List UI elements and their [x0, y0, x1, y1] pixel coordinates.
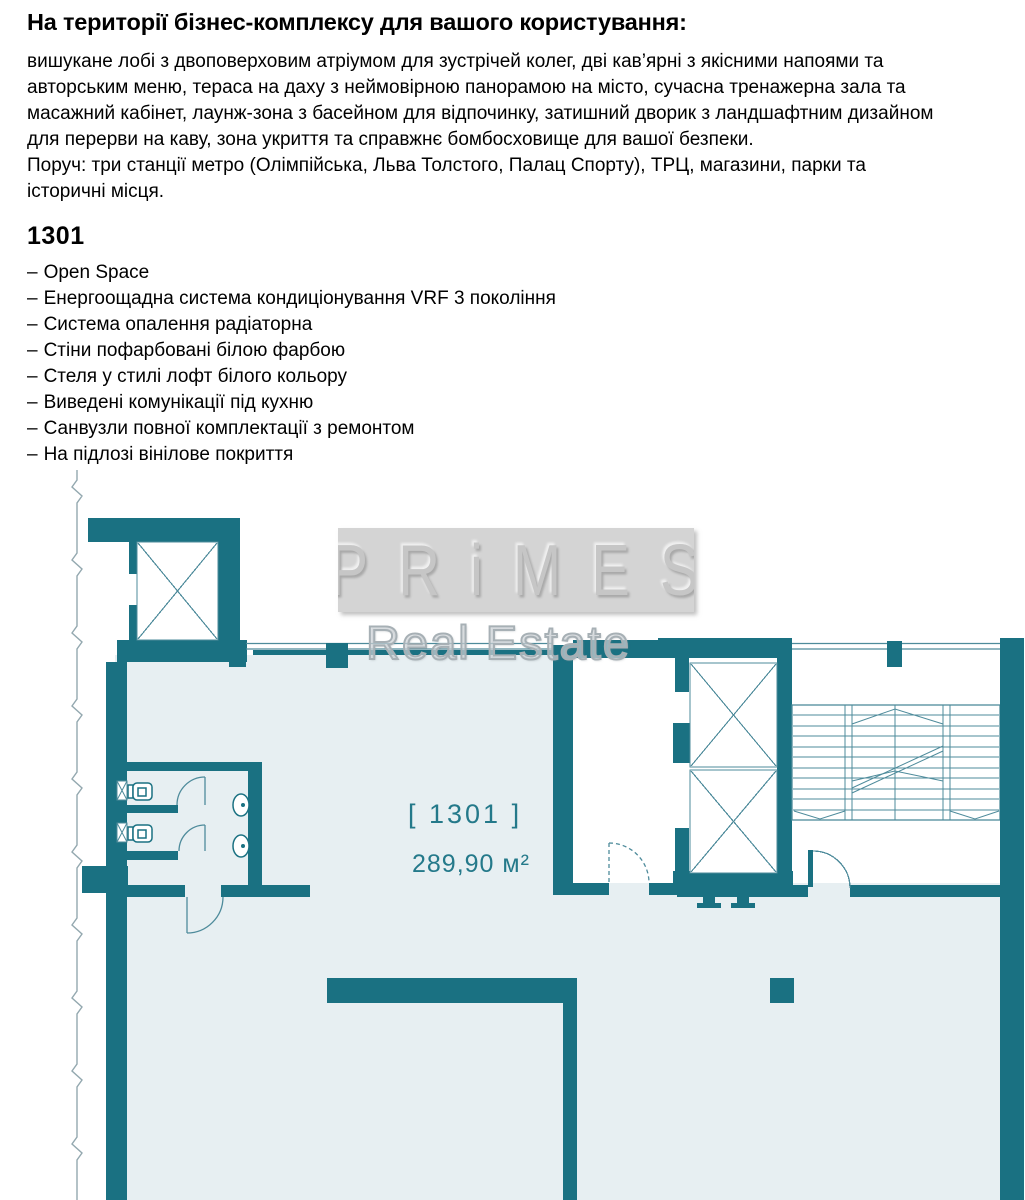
page-title: На території бізнес-комплексу для вашого…: [27, 9, 1025, 36]
description-line: вишукане лобі з двоповерховим атріумом д…: [27, 49, 1025, 75]
floor-plan: PRiMES Real Estate [ 1301 ] 289,90 м²: [0, 455, 1025, 1200]
description-line: історичні місця.: [27, 179, 1025, 205]
feature-item: –Виведені комунікації під кухню: [27, 390, 1025, 416]
dashed-door-icon: [609, 843, 649, 883]
feature-item: –Санвузли повної комплектації з ремонтом: [27, 416, 1025, 442]
feature-item: –Стеля у стилі лофт білого кольору: [27, 364, 1025, 390]
staircase: [792, 705, 1000, 820]
bullet-dash: –: [27, 418, 38, 439]
bullet-dash: –: [27, 288, 38, 309]
watermark-subtitle: Real Estate: [366, 615, 696, 670]
description: вишукане лобі з двоповерховим атріумом д…: [27, 49, 1025, 205]
feature-text: Санвузли повної комплектації з ремонтом: [44, 418, 415, 439]
unit-area-label: 289,90 м²: [412, 850, 530, 879]
right-wall: [1000, 638, 1024, 1200]
page: { "page": { "heading": "На території біз…: [0, 0, 1025, 1200]
bullet-dash: –: [27, 262, 38, 283]
watermark-brand-text: PRiMES: [338, 528, 694, 612]
feature-text: Open Space: [44, 262, 150, 283]
description-line: масажний кабінет, лаунж-зона з басейном …: [27, 101, 1025, 127]
bullet-dash: –: [27, 340, 38, 361]
elevator-block: [658, 638, 793, 908]
bullet-dash: –: [27, 314, 38, 335]
toilet-icon: [128, 825, 152, 842]
toilet-icon: [128, 783, 152, 800]
description-line: для перерви на каву, зона укриття та спр…: [27, 127, 1025, 153]
feature-item: –Енергоощадна система кондиціонування VR…: [27, 286, 1025, 312]
feature-list: –Open Space–Енергоощадна система кондиці…: [27, 260, 1025, 468]
entrance-corridor: [553, 640, 677, 895]
feature-text: Виведені комунікації під кухню: [44, 392, 314, 413]
feature-text: Стіни пофарбовані білою фарбою: [44, 340, 346, 361]
bullet-dash: –: [27, 392, 38, 413]
feature-text: Система опалення радіаторна: [44, 314, 313, 335]
feature-item: –Система опалення радіаторна: [27, 312, 1025, 338]
listing-text-block: На території бізнес-комплексу для вашого…: [27, 9, 1025, 468]
watermark-logo: PRiMES: [338, 528, 694, 612]
unit-number-label: [ 1301 ]: [408, 799, 522, 830]
elevator-top-left: [88, 518, 247, 662]
bullet-dash: –: [27, 366, 38, 387]
feature-text: Енергоощадна система кондиціонування VRF…: [44, 288, 556, 309]
left-wall: [82, 662, 128, 1200]
description-line: Поруч: три станції метро (Олімпійська, Л…: [27, 153, 1025, 179]
feature-text: Стеля у стилі лофт білого кольору: [44, 366, 347, 387]
description-line: авторським меню, тераса на даху з неймов…: [27, 75, 1025, 101]
unit-title: 1301: [27, 222, 1025, 251]
break-line: [72, 470, 82, 1200]
feature-item: –Open Space: [27, 260, 1025, 286]
feature-item: –Стіни пофарбовані білою фарбою: [27, 338, 1025, 364]
